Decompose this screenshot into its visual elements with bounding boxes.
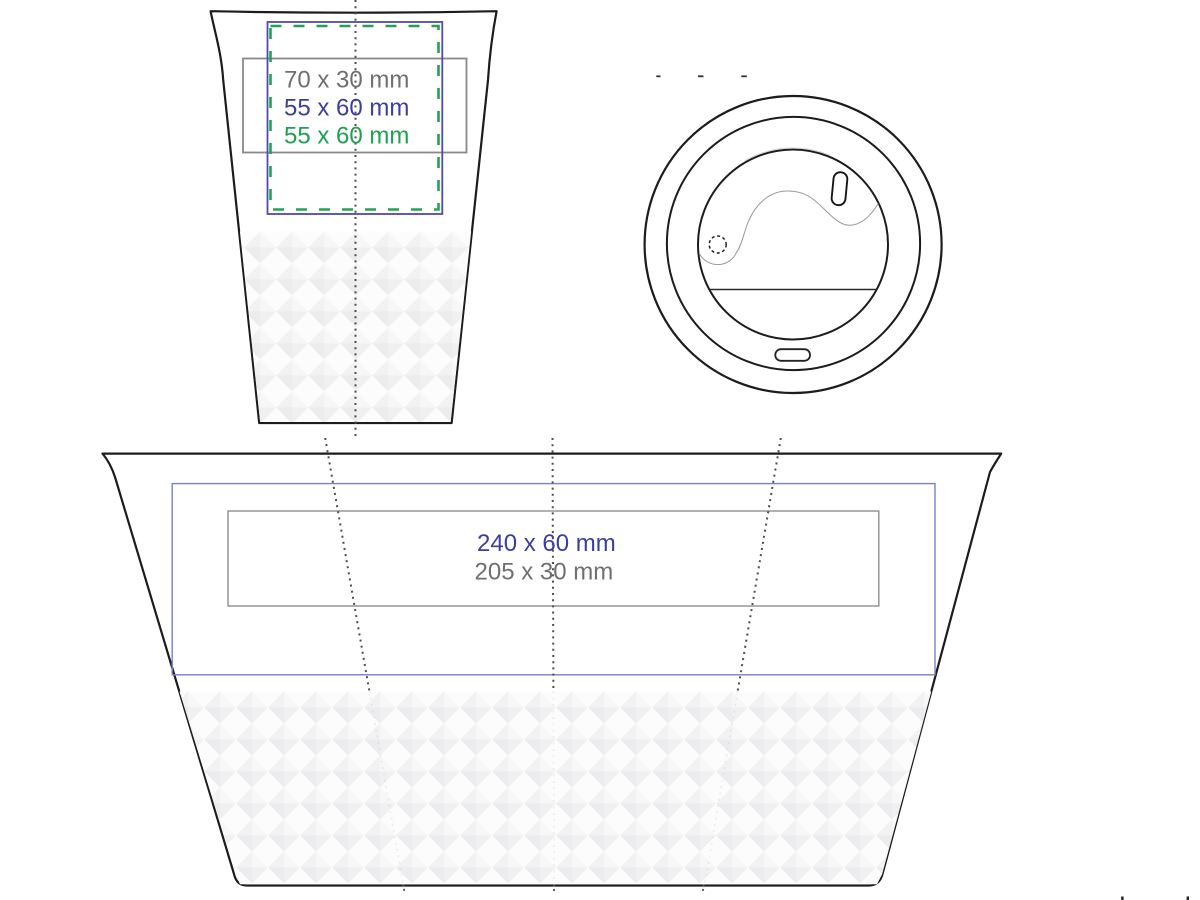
svg-text:205 x 30 mm: 205 x 30 mm	[475, 559, 614, 586]
svg-text:55 x 60 mm: 55 x 60 mm	[284, 95, 409, 122]
svg-text:55 x 60 mm: 55 x 60 mm	[284, 122, 409, 149]
svg-text:240 x 60 mm: 240 x 60 mm	[477, 530, 616, 557]
svg-text:70 x 30 mm: 70 x 30 mm	[284, 67, 409, 94]
